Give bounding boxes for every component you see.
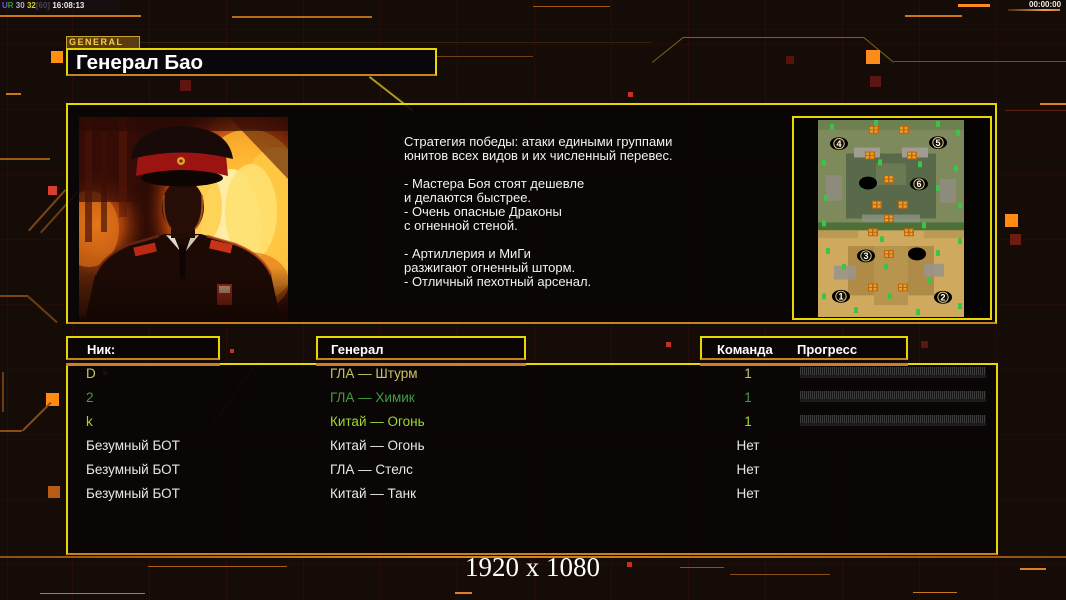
svg-text:5: 5 — [935, 138, 940, 148]
svg-text:6: 6 — [916, 179, 921, 189]
svg-text:1: 1 — [838, 292, 843, 302]
svg-text:3: 3 — [863, 251, 868, 261]
svg-text:2: 2 — [940, 293, 945, 303]
svg-text:4: 4 — [836, 139, 841, 149]
